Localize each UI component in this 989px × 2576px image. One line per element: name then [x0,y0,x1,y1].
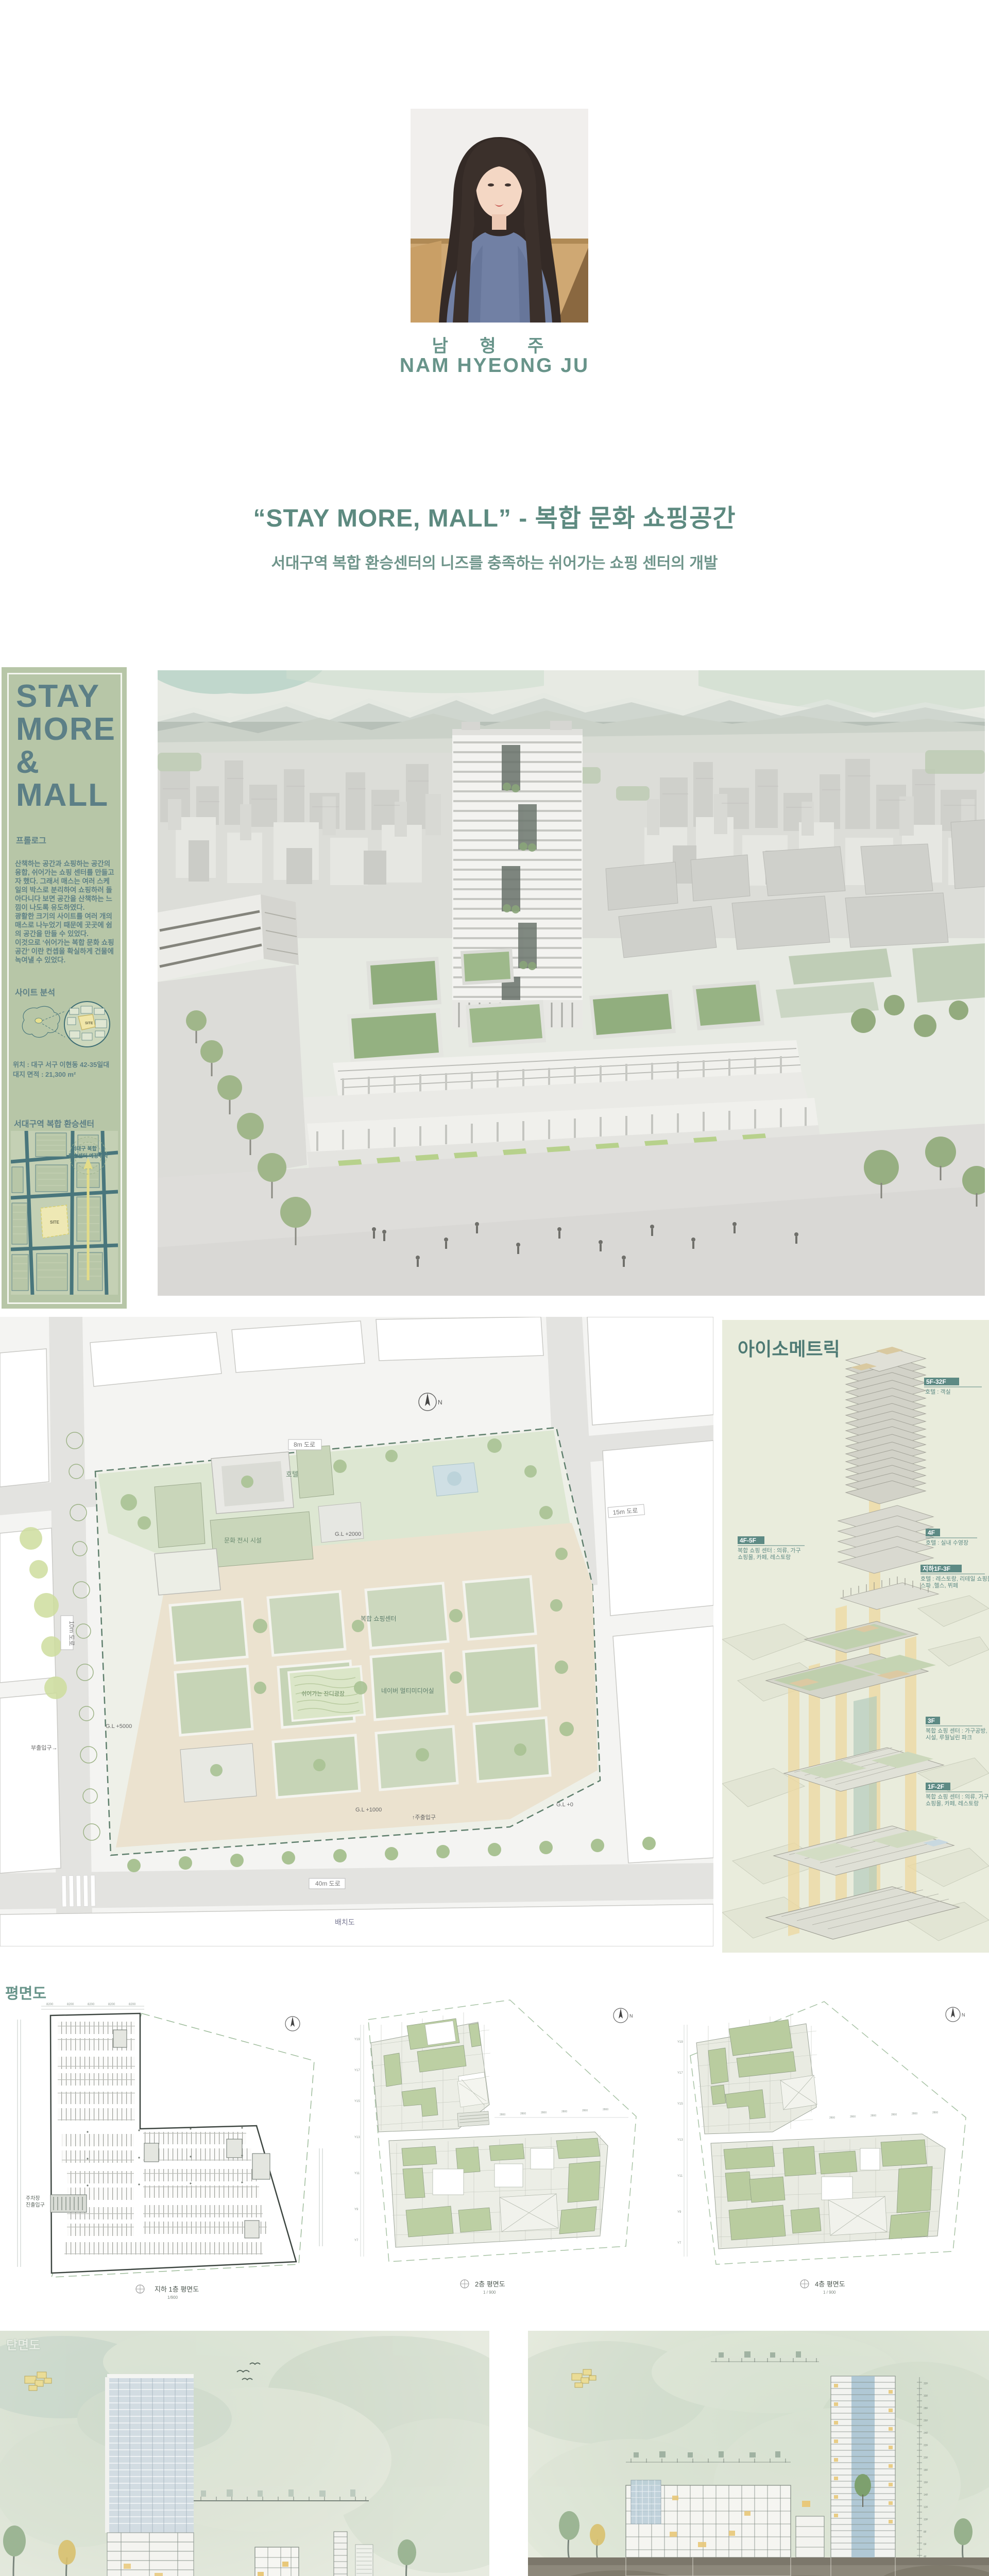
svg-text:10F: 10F [924,2518,928,2521]
svg-text:G.L +1000: G.L +1000 [355,1807,382,1813]
svg-text:20F: 20F [924,2456,928,2460]
svg-text:복합 쇼핑 센터 : 의류, 가구: 복합 쇼핑 센터 : 의류, 가구 [926,1793,989,1800]
svg-text:2800: 2800 [829,2116,835,2120]
svg-text:SITE: SITE [50,1220,59,1225]
svg-text:Y13: Y13 [354,2136,360,2139]
svg-text:1 / 900: 1 / 900 [823,2290,836,2295]
svg-text:10m 도로: 10m 도로 [68,1621,75,1646]
svg-text:4F-5F: 4F-5F [740,1537,756,1544]
svg-text:N: N [629,2013,633,2019]
svg-text:Y17: Y17 [677,2072,683,2075]
svg-text:N: N [962,2012,965,2018]
svg-text:8200: 8200 [108,2003,115,2006]
svg-text:2800: 2800 [871,2114,876,2117]
svg-text:쇼핑몰, 카페, 레스토랑: 쇼핑몰, 카페, 레스토랑 [738,1554,791,1561]
svg-text:2800: 2800 [500,2113,505,2116]
svg-text:8200: 8200 [88,2003,95,2006]
svg-text:복합 쇼핑 센터 : 의류, 가구: 복합 쇼핑 센터 : 의류, 가구 [738,1547,801,1554]
svg-text:시설, 루월닐린 파크: 시설, 루월닐린 파크 [926,1734,972,1741]
svg-text:진출입구: 진출입구 [26,2201,45,2208]
svg-text:부출입구→: 부출입구→ [31,1744,57,1751]
svg-text:Y9: Y9 [354,2208,359,2211]
svg-text:26F: 26F [924,2419,928,2422]
svg-text:서대구 복합: 서대구 복합 [72,1145,97,1152]
svg-text:8m 도로: 8m 도로 [294,1441,315,1448]
svg-text:네이버 멀티미디어실: 네이버 멀티미디어실 [381,1687,434,1694]
svg-text:Y15: Y15 [677,2103,683,2106]
svg-text:32F: 32F [924,2382,928,2385]
svg-text:12F: 12F [924,2506,928,2509]
svg-text:배치도: 배치도 [335,1918,355,1926]
svg-text:30F: 30F [924,2395,928,2398]
svg-text:2800: 2800 [561,2110,567,2113]
svg-text:4층 평면도: 4층 평면도 [815,2280,845,2288]
svg-text:8200: 8200 [46,2003,54,2006]
svg-text:환승센터 예정부지: 환승센터 예정부지 [69,1153,108,1159]
svg-text:2800: 2800 [850,2115,856,2119]
svg-text:Y7: Y7 [677,2242,681,2245]
svg-text:1F-2F: 1F-2F [928,1783,944,1790]
svg-text:호텔: 호텔 [286,1470,298,1478]
svg-text:2800: 2800 [603,2108,608,2111]
svg-text:40m 도로: 40m 도로 [315,1880,340,1887]
svg-text:24F: 24F [924,2432,928,2435]
svg-text:Y7: Y7 [354,2239,359,2242]
svg-text:호텔 : 실내 수영장: 호텔 : 실내 수영장 [926,1539,968,1546]
svg-text:쉬어가는 잔디광장: 쉬어가는 잔디광장 [301,1690,345,1697]
svg-text:8F: 8F [924,2531,927,2534]
svg-text:8200: 8200 [67,2003,74,2006]
svg-text:18F: 18F [924,2469,928,2472]
svg-text:Y19: Y19 [354,2038,360,2041]
svg-text:G.L +0: G.L +0 [556,1802,573,1808]
svg-text:5F-32F: 5F-32F [926,1378,946,1385]
svg-text:Y9: Y9 [677,2211,681,2214]
svg-text:2800: 2800 [912,2112,917,2115]
svg-text:28F: 28F [924,2407,928,2410]
svg-text:지하 1층 평면도: 지하 1층 평면도 [155,2285,199,2293]
svg-text:14F: 14F [924,2494,928,2497]
svg-text:22F: 22F [924,2444,928,2447]
svg-text:6F: 6F [924,2543,927,2546]
svg-text:SITE: SITE [85,1022,93,1025]
svg-text:Y15: Y15 [354,2100,360,2103]
svg-text:Y13: Y13 [677,2139,683,2142]
svg-text:16F: 16F [924,2481,928,2484]
svg-text:N: N [438,1399,442,1406]
svg-text:복합 쇼핑센터: 복합 쇼핑센터 [361,1615,397,1622]
svg-text:8200: 8200 [129,2003,136,2006]
svg-text:Y17: Y17 [354,2069,360,2072]
svg-text:쇼핑몰, 카페, 레스토랑: 쇼핑몰, 카페, 레스토랑 [926,1800,979,1807]
svg-text:Y11: Y11 [677,2175,683,2178]
svg-text:3F: 3F [928,1717,935,1724]
svg-text:지하1F-3F: 지하1F-3F [923,1565,950,1572]
svg-text:문화 전시 시설: 문화 전시 시설 [224,1537,262,1544]
svg-text:1/900: 1/900 [167,2295,178,2300]
svg-text:G.L +5000: G.L +5000 [106,1723,132,1730]
svg-text:2800: 2800 [541,2111,547,2114]
svg-text:호텔 : 레스토랑, 리테일 쇼핑몰,: 호텔 : 레스토랑, 리테일 쇼핑몰, [920,1575,989,1582]
svg-text:주차장: 주차장 [26,2195,40,2201]
svg-text:Y19: Y19 [677,2041,683,2044]
svg-text:2800: 2800 [520,2112,526,2115]
svg-text:4F: 4F [928,1529,935,1536]
svg-text:2800: 2800 [891,2113,897,2116]
svg-text:G.L +2000: G.L +2000 [335,1531,361,1537]
svg-text:Y11: Y11 [354,2172,360,2175]
svg-text:스파 ,헬스, 뷔페: 스파 ,헬스, 뷔페 [920,1582,958,1589]
svg-text:2층 평면도: 2층 평면도 [475,2280,505,2288]
svg-text:1 / 900: 1 / 900 [483,2290,496,2295]
svg-text:2800: 2800 [582,2109,588,2112]
svg-text:↑주출입구: ↑주출입구 [412,1814,436,1821]
svg-text:복합 쇼핑 센터 : 가구공방, 키즈: 복합 쇼핑 센터 : 가구공방, 키즈 [926,1727,989,1734]
svg-text:2800: 2800 [932,2111,938,2114]
svg-text:호텔 : 객실: 호텔 : 객실 [925,1388,951,1395]
